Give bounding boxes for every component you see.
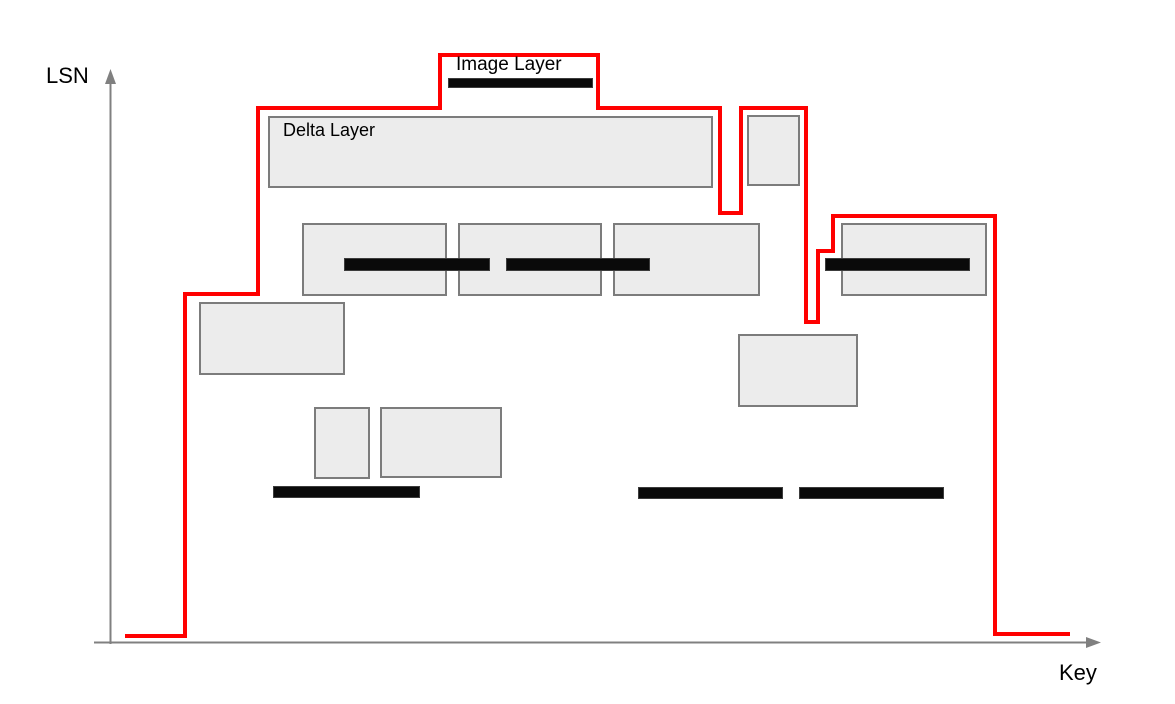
image-layer-bar-right [825, 258, 970, 271]
image-layer-bar-labeled [448, 78, 593, 88]
image-layer-label: Image Layer [456, 55, 562, 75]
axes-and-boundary-canvas [0, 0, 1175, 704]
image-layer-bar-mid-1 [344, 258, 490, 271]
delta-layer-rect-lower-right [738, 334, 858, 407]
image-layer-bar-bottom-1 [273, 486, 420, 498]
delta-layer-rect-small-top [747, 115, 800, 186]
lsn-axis-arrow-icon [105, 69, 116, 84]
key-axis-arrow-icon [1086, 637, 1101, 648]
delta-layer-rect-bottom [380, 407, 502, 478]
key-axis-label: Key [1059, 661, 1097, 684]
delta-layer-rect-left [199, 302, 345, 375]
delta-layer-label: Delta Layer [283, 121, 375, 140]
image-layer-bar-bottom-2 [638, 487, 783, 499]
image-layer-bar-bottom-3 [799, 487, 944, 499]
image-layer-bar-mid-2 [506, 258, 650, 271]
lsn-axis-label: LSN [46, 64, 89, 87]
layer-map-diagram: LSN Key Image Layer Delta Layer [0, 0, 1175, 704]
delta-layer-rect-small-bottom [314, 407, 370, 479]
